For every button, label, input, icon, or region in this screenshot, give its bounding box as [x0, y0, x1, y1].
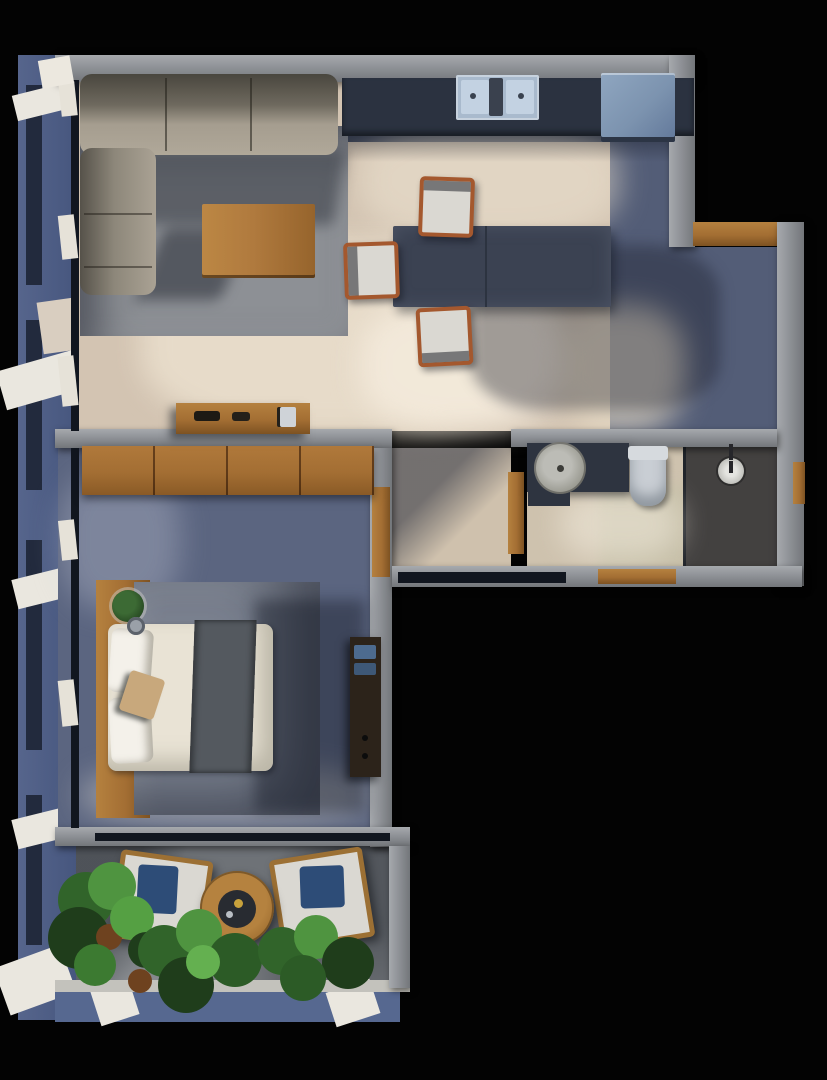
dining-chair-north	[418, 176, 475, 238]
sofa-cushion-seam	[250, 78, 252, 151]
bedroom-window-mullion	[71, 448, 79, 828]
bed-runner-blanket	[189, 620, 256, 773]
sink-knob	[470, 93, 476, 99]
wall-east-wood-notch	[793, 462, 805, 504]
bedroom-door-jamb	[372, 487, 390, 577]
bedroom-dresser	[350, 637, 381, 777]
sofa-left-section	[80, 148, 156, 295]
sink-knob	[518, 93, 524, 99]
hall-south-window	[398, 572, 566, 583]
sofa-top-section	[80, 74, 338, 155]
plant-leaf	[280, 955, 326, 1001]
sink-faucet	[489, 78, 503, 116]
bathroom-door-jamb	[508, 472, 524, 554]
shower-head	[718, 458, 744, 484]
wall-hall-south	[392, 566, 802, 587]
facade-window-slot	[26, 320, 42, 490]
facade-window-slot	[26, 540, 42, 750]
window-sill	[58, 81, 77, 116]
sideboard-decor	[194, 411, 220, 421]
bathroom-round-sink	[534, 442, 586, 494]
dresser-knob	[362, 753, 368, 759]
balcony-plant-cluster-right	[250, 915, 385, 1020]
sideboard-canister	[280, 407, 296, 427]
shower-arm	[729, 444, 733, 460]
wall-balcony-door	[55, 827, 410, 846]
toilet-tank	[628, 446, 668, 460]
balcony-sliding-glass	[95, 833, 390, 841]
toilet	[630, 450, 666, 506]
dresser-decor-blue	[354, 663, 376, 675]
wall-balcony-east	[389, 846, 410, 988]
balcony-chair-pillow-blue	[299, 865, 344, 909]
dining-chair-west	[343, 241, 400, 300]
dining-table	[393, 226, 611, 307]
chair-backrest	[422, 351, 469, 363]
window-ledge-wood	[693, 222, 779, 246]
wall-east-main	[777, 222, 804, 586]
dining-table-seam	[485, 226, 487, 307]
chair-backrest	[424, 180, 471, 192]
nightstand-dish	[127, 617, 145, 635]
sofa-cushion-seam	[165, 78, 167, 151]
sofa-cushion-seam	[84, 213, 152, 215]
chair-backrest	[347, 246, 359, 295]
wall-end-cap	[38, 55, 74, 88]
wardrobe	[82, 446, 374, 495]
hall-south-wood-sill	[598, 569, 676, 584]
sofa-cushion-seam	[84, 266, 152, 268]
plant-leaf	[322, 937, 374, 989]
refrigerator	[601, 73, 675, 142]
dresser-decor-blue	[354, 645, 376, 659]
coffee-table	[202, 204, 315, 278]
plant-pot	[128, 969, 152, 993]
kitchen-sink	[456, 75, 539, 120]
sideboard-decor	[232, 412, 250, 421]
hallway-shadow	[392, 448, 511, 566]
dining-chair-south	[415, 306, 473, 368]
plant-leaf	[186, 945, 220, 979]
sink-drain	[557, 465, 564, 472]
sideboard	[176, 403, 310, 434]
floorplan-render	[0, 0, 827, 1080]
shower-head-pivot	[729, 461, 733, 473]
plant-leaf	[74, 944, 116, 986]
dresser-knob	[362, 735, 368, 741]
